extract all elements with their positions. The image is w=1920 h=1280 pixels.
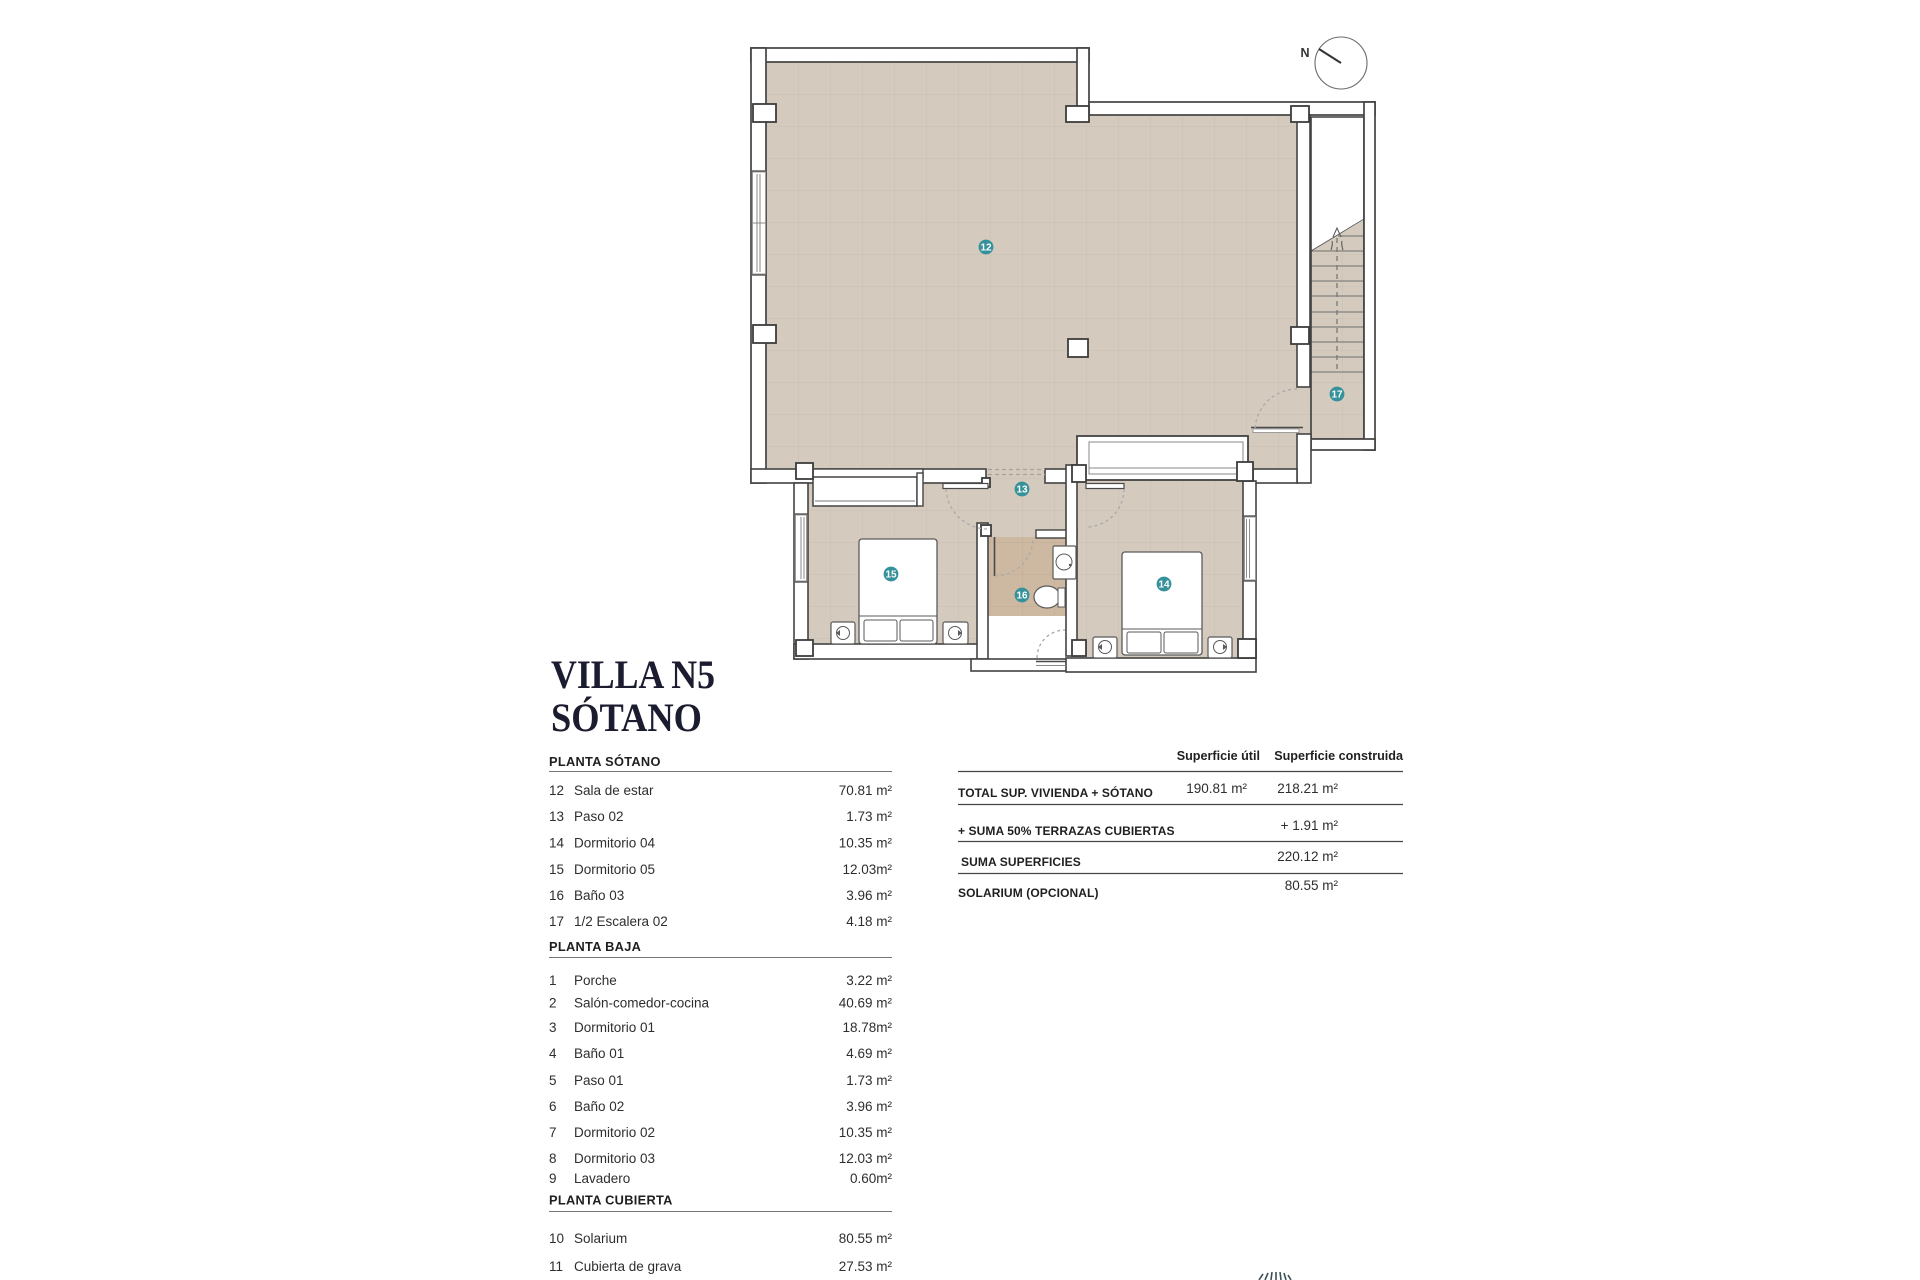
svg-text:13: 13	[1016, 485, 1028, 496]
svg-text:3.22 m²: 3.22 m²	[846, 973, 892, 988]
svg-text:Dormitorio 02: Dormitorio 02	[574, 1125, 655, 1140]
svg-text:0.60m²: 0.60m²	[850, 1171, 893, 1186]
svg-text:Baño 02: Baño 02	[574, 1099, 624, 1114]
svg-text:N: N	[1300, 46, 1309, 60]
svg-text:16: 16	[1016, 591, 1028, 602]
svg-text:TOTAL SUP. VIVIENDA + SÓTANO: TOTAL SUP. VIVIENDA + SÓTANO	[958, 785, 1153, 800]
svg-text:18.78m²: 18.78m²	[842, 1020, 892, 1035]
svg-text:Sala de estar: Sala de estar	[574, 783, 654, 798]
svg-text:80.55 m²: 80.55 m²	[839, 1231, 893, 1246]
svg-text:3.96 m²: 3.96 m²	[846, 1099, 892, 1114]
svg-text:Solarium: Solarium	[574, 1231, 627, 1246]
svg-text:SOLARIUM (OPCIONAL): SOLARIUM (OPCIONAL)	[958, 886, 1099, 900]
svg-text:Superficie útil: Superficie útil	[1177, 749, 1260, 763]
svg-text:2: 2	[549, 996, 557, 1011]
svg-text:15: 15	[549, 862, 564, 877]
svg-text:10: 10	[549, 1231, 564, 1246]
svg-text:Dormitorio 05: Dormitorio 05	[574, 862, 655, 877]
svg-text:PLANTA SÓTANO: PLANTA SÓTANO	[549, 754, 661, 769]
svg-text:14: 14	[549, 836, 565, 851]
svg-text:1/2 Escalera 02: 1/2 Escalera 02	[574, 914, 668, 929]
svg-text:Salón-comedor-cocina: Salón-comedor-cocina	[574, 996, 710, 1011]
svg-text:Dormitorio 03: Dormitorio 03	[574, 1151, 655, 1166]
svg-text:4.69 m²: 4.69 m²	[846, 1046, 892, 1061]
svg-text:16: 16	[549, 888, 564, 903]
svg-text:12: 12	[980, 243, 992, 254]
svg-text:SÓTANO: SÓTANO	[551, 695, 702, 740]
svg-text:VILLA N5: VILLA N5	[551, 652, 715, 697]
svg-text:190.81 m²: 190.81 m²	[1186, 781, 1247, 796]
svg-text:12.03m²: 12.03m²	[842, 862, 892, 877]
svg-text:17: 17	[549, 914, 564, 929]
svg-text:5: 5	[549, 1073, 557, 1088]
svg-text:1: 1	[549, 973, 557, 988]
svg-text:Superficie construida: Superficie construida	[1274, 749, 1404, 763]
svg-text:Lavadero: Lavadero	[574, 1171, 630, 1186]
svg-text:Paso 02: Paso 02	[574, 809, 624, 824]
svg-text:4: 4	[549, 1046, 557, 1061]
svg-text:10.35 m²: 10.35 m²	[839, 836, 893, 851]
svg-text:11: 11	[549, 1259, 563, 1274]
svg-text:+ 1.91 m²: + 1.91 m²	[1281, 818, 1339, 833]
svg-text:SUMA SUPERFICIES: SUMA SUPERFICIES	[961, 855, 1081, 869]
svg-text:80.55 m²: 80.55 m²	[1285, 878, 1339, 893]
svg-text:PLANTA BAJA: PLANTA BAJA	[549, 939, 641, 954]
svg-text:10.35 m²: 10.35 m²	[839, 1125, 893, 1140]
svg-text:8: 8	[549, 1151, 557, 1166]
svg-text:+ SUMA 50% TERRAZAS CUBIERTAS: + SUMA 50% TERRAZAS CUBIERTAS	[958, 824, 1175, 838]
svg-text:218.21 m²: 218.21 m²	[1277, 781, 1338, 796]
svg-text:1.73 m²: 1.73 m²	[846, 1073, 892, 1088]
svg-text:40.69 m²: 40.69 m²	[839, 996, 893, 1011]
svg-text:Dormitorio 01: Dormitorio 01	[574, 1020, 655, 1035]
svg-text:Dormitorio 04: Dormitorio 04	[574, 836, 656, 851]
svg-text:Paso 01: Paso 01	[574, 1073, 624, 1088]
svg-text:3: 3	[549, 1020, 557, 1035]
svg-text:220.12 m²: 220.12 m²	[1277, 849, 1338, 864]
svg-text:27.53 m²: 27.53 m²	[839, 1259, 893, 1274]
svg-text:14: 14	[1158, 580, 1170, 591]
svg-text:13: 13	[549, 809, 564, 824]
svg-text:9: 9	[549, 1171, 557, 1186]
svg-text:Baño 03: Baño 03	[574, 888, 624, 903]
svg-text:3.96 m²: 3.96 m²	[846, 888, 892, 903]
svg-text:15: 15	[885, 570, 897, 581]
svg-text:Cubierta de grava: Cubierta de grava	[574, 1259, 682, 1274]
svg-text:12.03 m²: 12.03 m²	[839, 1151, 893, 1166]
svg-text:PLANTA CUBIERTA: PLANTA CUBIERTA	[549, 1193, 673, 1208]
svg-text:70.81 m²: 70.81 m²	[839, 783, 893, 798]
svg-text:7: 7	[549, 1125, 557, 1140]
svg-text:4.18 m²: 4.18 m²	[846, 914, 892, 929]
svg-text:17: 17	[1331, 390, 1343, 401]
svg-text:1.73 m²: 1.73 m²	[846, 809, 892, 824]
svg-text:Porche: Porche	[574, 973, 617, 988]
svg-text:Baño 01: Baño 01	[574, 1046, 624, 1061]
svg-text:12: 12	[549, 783, 564, 798]
svg-text:6: 6	[549, 1099, 557, 1114]
